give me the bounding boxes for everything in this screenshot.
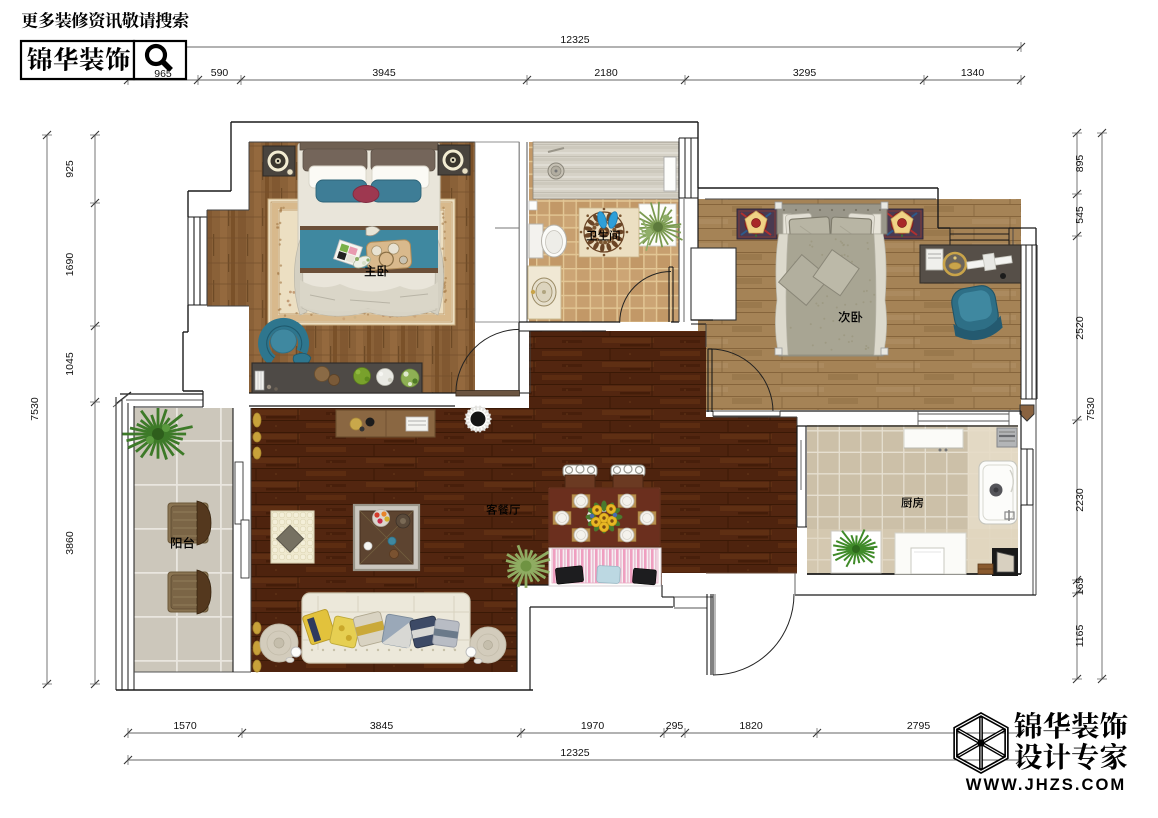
svg-text:1165: 1165: [1074, 625, 1086, 648]
svg-text:965: 965: [154, 68, 172, 80]
svg-text:165: 165: [1074, 578, 1086, 596]
svg-text:1690: 1690: [64, 253, 76, 277]
svg-text:12325: 12325: [560, 747, 589, 759]
svg-text:3295: 3295: [793, 67, 817, 79]
svg-text:1340: 1340: [961, 67, 985, 79]
svg-text:3945: 3945: [372, 67, 396, 79]
svg-text:WWW.JHZS.COM: WWW.JHZS.COM: [966, 775, 1126, 794]
svg-text:2795: 2795: [907, 720, 931, 732]
svg-text:295: 295: [666, 720, 684, 732]
svg-text:895: 895: [1074, 155, 1086, 173]
svg-text:2180: 2180: [594, 67, 618, 79]
svg-text:7530: 7530: [1085, 397, 1097, 421]
svg-text:590: 590: [211, 67, 229, 79]
svg-text:1970: 1970: [581, 720, 605, 732]
svg-text:3845: 3845: [370, 720, 394, 732]
svg-text:7530: 7530: [29, 397, 41, 421]
svg-text:925: 925: [64, 160, 76, 178]
svg-text:3860: 3860: [64, 531, 76, 555]
svg-text:12325: 12325: [560, 34, 589, 46]
svg-text:2230: 2230: [1074, 488, 1086, 512]
svg-text:545: 545: [1074, 206, 1086, 224]
svg-text:1820: 1820: [739, 720, 763, 732]
svg-text:2520: 2520: [1074, 316, 1086, 340]
svg-text:1570: 1570: [173, 720, 197, 732]
svg-text:1045: 1045: [64, 352, 76, 376]
